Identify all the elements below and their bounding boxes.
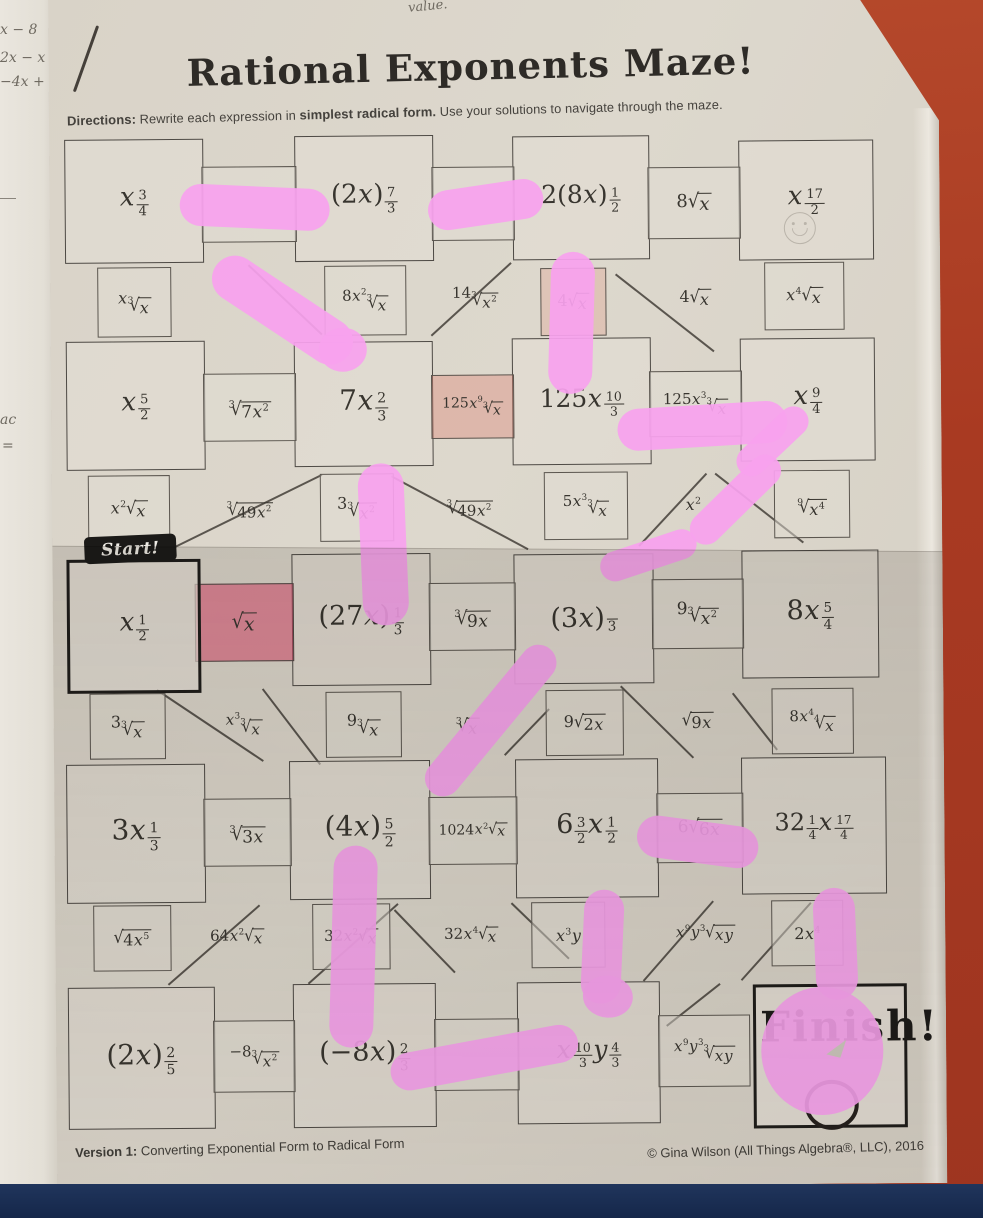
maze-connector-cell: √9x xyxy=(660,689,735,754)
maze-connector-cell: √x xyxy=(195,583,295,662)
maze-box: 3214x174 xyxy=(741,756,887,894)
maze-connector-cell: 8√x xyxy=(647,167,741,240)
maze-connector-cell: x3√x xyxy=(97,267,172,338)
handwritten-scrap: −4x + xyxy=(0,74,45,90)
worksheet-paper: value. Rational Exponents Maze! Directio… xyxy=(48,0,947,1190)
page-title: Rational Exponents Maze! xyxy=(0,34,941,98)
maze-connector-cell: 3√49x2 xyxy=(209,474,292,541)
handwritten-scrap: x − 8 xyxy=(0,22,37,38)
pink-marker-stroke xyxy=(319,328,367,372)
worksheet-photo: x − 8 2x − x −4x + ac = value. Rational … xyxy=(0,0,983,1218)
maze-connector-cell: x9y3√xy xyxy=(662,901,748,966)
pink-marker-stroke xyxy=(179,183,331,232)
handwritten-scrap: ac xyxy=(0,412,16,428)
maze-connector-cell: 9√2x xyxy=(545,690,624,757)
maze-box: (2x)25 xyxy=(68,987,216,1130)
pink-marker-stroke xyxy=(812,887,859,1001)
maze-connector-cell: 5x33√x xyxy=(544,471,629,540)
footer-version: Version 1: Converting Exponential Form t… xyxy=(75,1136,405,1160)
maze-connector-cell: 9√x4 xyxy=(774,470,851,539)
pink-marker-stroke xyxy=(548,251,596,394)
maze-connector-cell: 125x93√x xyxy=(431,374,515,439)
directions-text: Directions: Rewrite each expression in s… xyxy=(67,91,937,128)
maze-box: 8x54 xyxy=(741,549,879,678)
handwritten-scrap: 2x − x xyxy=(0,50,45,66)
smiley-ghost-icon xyxy=(784,212,816,244)
maze-connector-cell: 93√x2 xyxy=(652,579,745,650)
maze-connector-cell: 3√7x2 xyxy=(203,373,297,442)
maze-connector-cell: −83√x2 xyxy=(213,1020,296,1093)
maze-connector-cell: x33√x xyxy=(205,692,282,757)
maze-connector-cell: 3√9x xyxy=(429,582,517,651)
pink-marker-stroke xyxy=(329,845,378,1048)
pink-marker-stroke xyxy=(761,986,884,1115)
bottom-navy-strip xyxy=(0,1184,983,1218)
maze-connector-cell: 93√x xyxy=(325,691,402,758)
pink-marker-stroke xyxy=(357,462,410,626)
directions-label: Directions: xyxy=(67,112,136,129)
maze-connector-cell: 8x44√x xyxy=(771,688,854,755)
maze-connector-cell: 32x4√x xyxy=(431,902,512,967)
start-label: Start! xyxy=(84,533,177,564)
handwritten-line xyxy=(0,198,16,199)
maze-connector-cell: 3√3x xyxy=(203,798,292,867)
maze-connector-cell: 4√x xyxy=(657,265,734,332)
handwritten-scrap-top: value. xyxy=(407,0,448,16)
maze-connector-cell: x4√x xyxy=(764,262,845,331)
maze-connector-cell: 64x2√x xyxy=(197,904,278,969)
maze-connector-cell: x9y33√xy xyxy=(658,1015,751,1088)
maze-connector-cell: 33√x xyxy=(89,693,166,760)
maze-connector-cell: 1024x2√x xyxy=(428,796,518,865)
maze-box: x52 xyxy=(66,341,206,471)
maze-connector-cell: 143√x2 xyxy=(434,262,517,333)
handwritten-scrap: = xyxy=(2,438,14,454)
maze-box: 3x13 xyxy=(66,764,206,904)
maze-connector-cell: 3√49x2 xyxy=(430,472,511,539)
footer-copyright: © Gina Wilson (All Things Algebra®, LLC)… xyxy=(604,1138,924,1162)
start-box: x12 xyxy=(66,559,201,694)
maze-connector-cell: √4x5 xyxy=(93,905,172,972)
